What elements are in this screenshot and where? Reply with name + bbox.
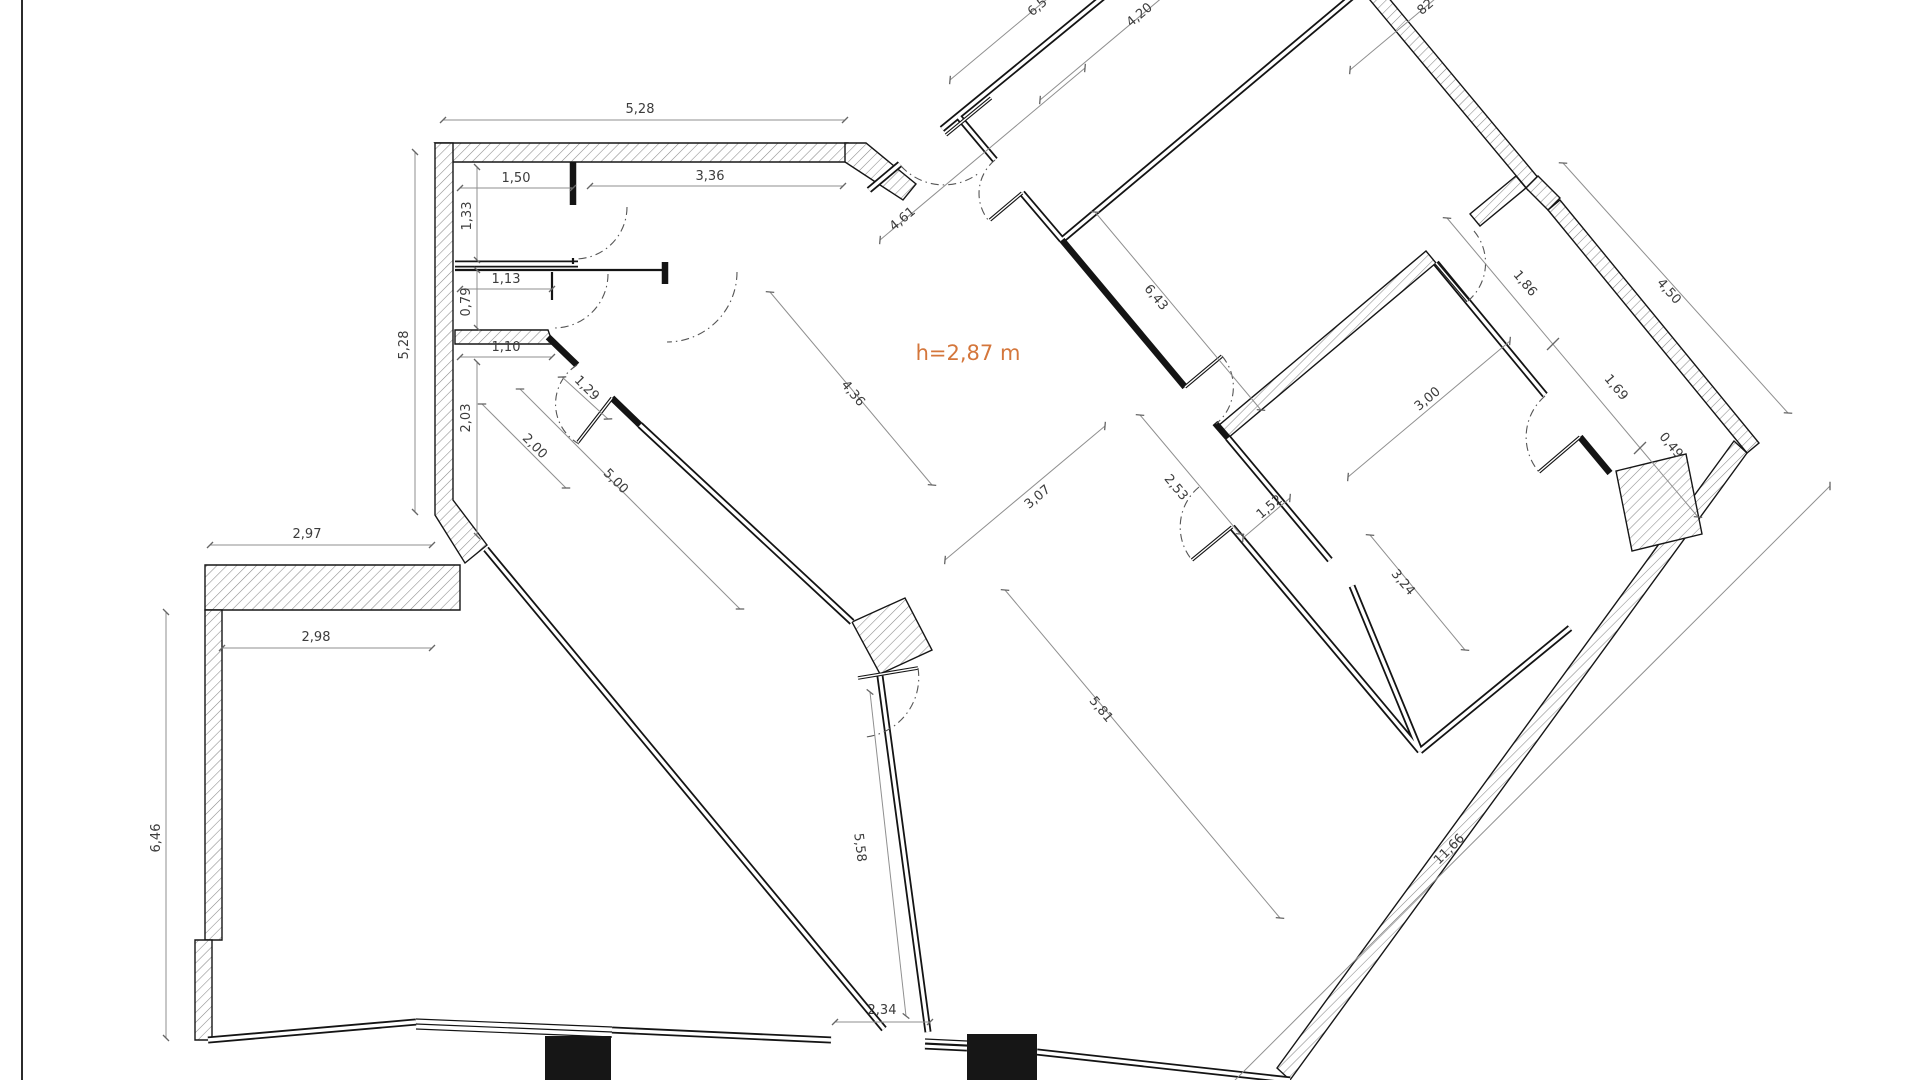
dim-label-diag-short: 2,00 <box>519 431 550 462</box>
dim-line-right-room-h <box>1370 535 1465 650</box>
dim-line-right-chain <box>1447 218 1698 517</box>
wall-topright-ne <box>1360 0 1540 190</box>
dim-label-below-b-w: 1,10 <box>492 340 521 355</box>
dim-label-room-a-h: 1,33 <box>460 202 475 231</box>
bottom-jamb-right <box>967 1034 1037 1080</box>
dim-label-left-height: 5,28 <box>397 331 412 360</box>
ceiling-height-label: h=2,87 m <box>916 341 1021 365</box>
wall-topright-se-a <box>1470 176 1526 226</box>
dim-label-room-b-h: 0,79 <box>459 288 474 317</box>
floor-plan-page: 5,28 5,28 1,50 3,36 1,33 1,13 0,79 1,10 … <box>0 0 1920 1080</box>
dim-label-big-room-sw: 6,43 <box>1141 282 1171 314</box>
dim-label-ll-left: 6,46 <box>149 824 164 853</box>
dim-label-ll-top-inner: 2,98 <box>302 630 331 645</box>
dim-label-room-b-w: 1,13 <box>492 272 521 287</box>
wall-top-ortho <box>435 143 848 162</box>
wall-top-connector <box>845 143 916 200</box>
floor-plan-svg: 5,28 5,28 1,50 3,36 1,33 1,13 0,79 1,10 … <box>0 0 1920 1080</box>
bottom-jamb-left <box>545 1036 611 1080</box>
dim-label-corridor-nw: 4,61 <box>887 204 919 234</box>
dim-label-below-b-h: 2,03 <box>459 404 474 433</box>
dimension-lines <box>166 0 1830 1080</box>
dim-label-right-room-h: 3,24 <box>1388 567 1418 599</box>
wall-center-pier <box>852 598 932 674</box>
dim-label-diamond-nw: 3,07 <box>1022 482 1054 512</box>
dim-label-top-width: 5,28 <box>626 102 655 117</box>
wall-lowerleft-upper <box>205 610 222 940</box>
dimension-labels: 5,28 5,28 1,50 3,36 1,33 1,13 0,79 1,10 … <box>149 0 1686 1018</box>
dim-label-hall-cross: 4,36 <box>838 378 868 410</box>
dim-label-corridor-len-s: 5,58 <box>850 832 868 863</box>
wall-right-step-block <box>1616 454 1702 551</box>
dim-label-diamond-ne: 2,53 <box>1161 472 1191 504</box>
dim-label-ll-top-outer: 2,97 <box>293 527 322 542</box>
dim-label-right-b: 1,69 <box>1601 372 1631 404</box>
hatched-walls <box>195 0 1759 1080</box>
dim-line-diag-long <box>520 389 740 609</box>
dim-line-lower-right-len <box>1005 590 1280 918</box>
wall-lowerleft-top <box>205 565 460 610</box>
dim-line-right-room-w <box>1348 341 1510 477</box>
dim-label-corridor-w: 2,34 <box>868 1003 897 1018</box>
door-swing-arcs <box>554 160 1545 737</box>
wall-lowerleft-lower <box>195 940 212 1040</box>
dim-label-ne-partial: 82 <box>1415 0 1437 18</box>
thick-wall-stubs <box>548 162 1610 473</box>
dim-label-nw-upper: 4,20 <box>1124 0 1156 30</box>
wall-topright-se-b <box>1218 251 1436 438</box>
dim-label-hall-top: 3,36 <box>696 169 725 184</box>
dim-label-nw-upper-partial: 6,5 <box>1025 0 1050 20</box>
dim-label-room-a-w: 1,50 <box>502 171 531 186</box>
dim-label-right-outer: 4,50 <box>1653 276 1684 308</box>
dim-label-lower-right-len: 5,81 <box>1086 694 1116 726</box>
dim-line-diamond-nw <box>945 426 1105 560</box>
dim-label-diag-long: 5,00 <box>600 466 631 497</box>
dim-label-right-a: 1,86 <box>1510 268 1540 300</box>
wall-rightwing-ne <box>1548 200 1759 453</box>
